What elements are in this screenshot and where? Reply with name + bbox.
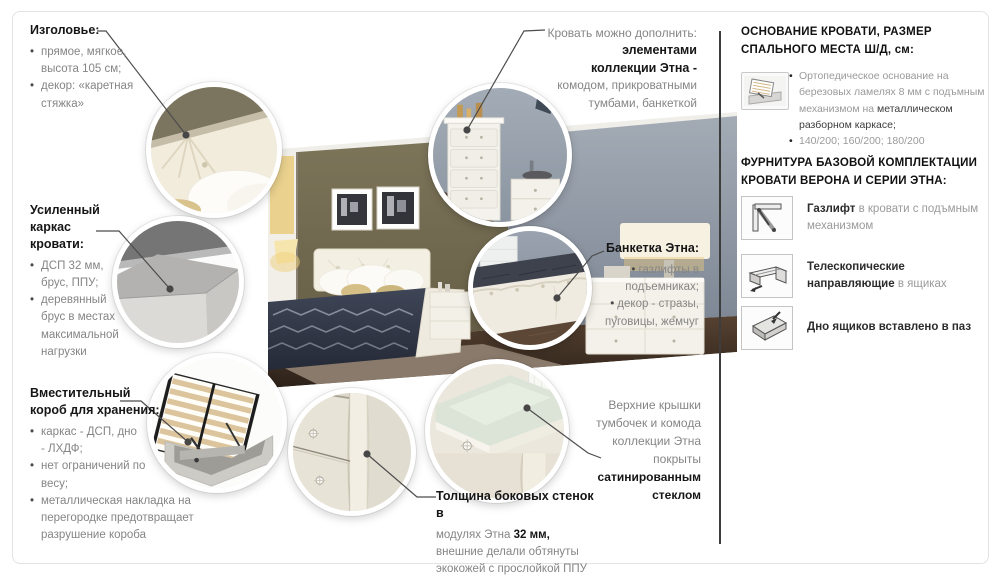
- callout-walls-text: модулях Этна 32 мм, внешние делали обтян…: [436, 527, 600, 578]
- framed-picture: [377, 187, 419, 229]
- callout-addons-bold: элементами коллекции Этна -: [577, 42, 697, 77]
- list-item: Ортопедическое основание на березовых ла…: [789, 68, 991, 133]
- framed-picture: [332, 189, 372, 230]
- panel-header-base: ОСНОВАНИЕ КРОВАТИ, РАЗМЕР СПАЛЬНОГО МЕСТ…: [741, 24, 987, 60]
- callout-headboard-title: Изголовье:: [30, 22, 160, 39]
- callout-frame-title: Усиленный каркас кровати:: [30, 202, 118, 253]
- gas-lift-icon: [741, 196, 793, 240]
- callout-circle-glasstop: [425, 359, 569, 503]
- panel-divider: [719, 31, 721, 544]
- callout-walls-title: Толщина боковых стенок в: [436, 488, 600, 522]
- callout-headboard: Изголовье: прямое, мягкое, высота 105 см…: [30, 22, 160, 113]
- list-item: металлическая накладка на перегородке пр…: [30, 493, 235, 545]
- list-item: газлифты в подъемниках;: [585, 262, 699, 297]
- panel-base-list: Ортопедическое основание на березовых ла…: [789, 68, 991, 149]
- hardware-text: Газлифт в кровати с подъмным механизмом: [807, 201, 987, 236]
- callout-headboard-list: прямое, мягкое, высота 105 см; декор: «к…: [30, 44, 160, 113]
- callout-storage-list: каркас - ДСП, дно - ЛХДФ; нет ограничени…: [30, 424, 235, 545]
- list-item: декор: «каретная стяжка»: [30, 78, 145, 113]
- list-item: деревянный брус в местах максимальной на…: [30, 292, 129, 361]
- list-item: нет ограничений по весу;: [30, 458, 159, 493]
- telescopic-rails-icon: [741, 254, 793, 298]
- hardware-row-drawer-bottom: Дно ящиков вставлено в паз: [741, 306, 989, 350]
- panel-header-hardware: ФУРНИТУРА БАЗОВОЙ КОМПЛЕКТАЦИИ КРОВАТИ В…: [741, 155, 987, 191]
- callout-addons-rest: комодом, прикроватными тумбами, банкетко…: [537, 77, 697, 112]
- callout-circle-banquette: [468, 226, 592, 350]
- list-item: прямое, мягкое, высота 105 см;: [30, 44, 145, 79]
- callout-frame-list: ДСП 32 мм, брус, ППУ; деревянный брус в …: [30, 258, 148, 362]
- callout-circle-headboard: [146, 82, 282, 218]
- hardware-row-gaslift: Газлифт в кровати с подъмным механизмом: [741, 196, 989, 240]
- callout-storage: Вместительный короб для хранения: каркас…: [30, 385, 235, 545]
- callout-banquette-list: газлифты в подъемниках; декор - стразы, …: [585, 262, 699, 331]
- callout-frame: Усиленный каркас кровати: ДСП 32 мм, бру…: [30, 202, 148, 361]
- callout-glass-lead: Верхние крышки тумбочек и комода коллекц…: [565, 396, 701, 468]
- hardware-row-rails: Телескопические направляющие в ящиках: [741, 254, 989, 298]
- list-item: декор - стразы, пуговицы, жемчуг: [585, 296, 699, 331]
- callout-banquette: Банкетка Этна: газлифты в подъемниках; д…: [585, 240, 699, 331]
- list-item: 140/200; 160/200; 180/200: [789, 133, 991, 149]
- callout-walls: Толщина боковых стенок в модулях Этна 32…: [436, 488, 600, 578]
- infographic-page: Изголовье: прямое, мягкое, высота 105 см…: [0, 0, 1000, 578]
- list-item: ДСП 32 мм, брус, ППУ;: [30, 258, 119, 293]
- list-item: каркас - ДСП, дно - ЛХДФ;: [30, 424, 141, 459]
- hardware-text: Дно ящиков вставлено в паз: [807, 319, 987, 336]
- callout-circle-sidewalls: [288, 388, 416, 516]
- bed-lift-photo: [741, 72, 789, 110]
- callout-addons-lead: Кровать можно дополнить:: [515, 24, 697, 42]
- hardware-text: Телескопические направляющие в ящиках: [807, 259, 987, 294]
- callout-addons: Кровать можно дополнить: элементами колл…: [515, 24, 697, 112]
- drawer-groove-icon: [741, 306, 793, 350]
- callout-banquette-title: Банкетка Этна:: [585, 240, 699, 257]
- callout-storage-title: Вместительный короб для хранения:: [30, 385, 162, 419]
